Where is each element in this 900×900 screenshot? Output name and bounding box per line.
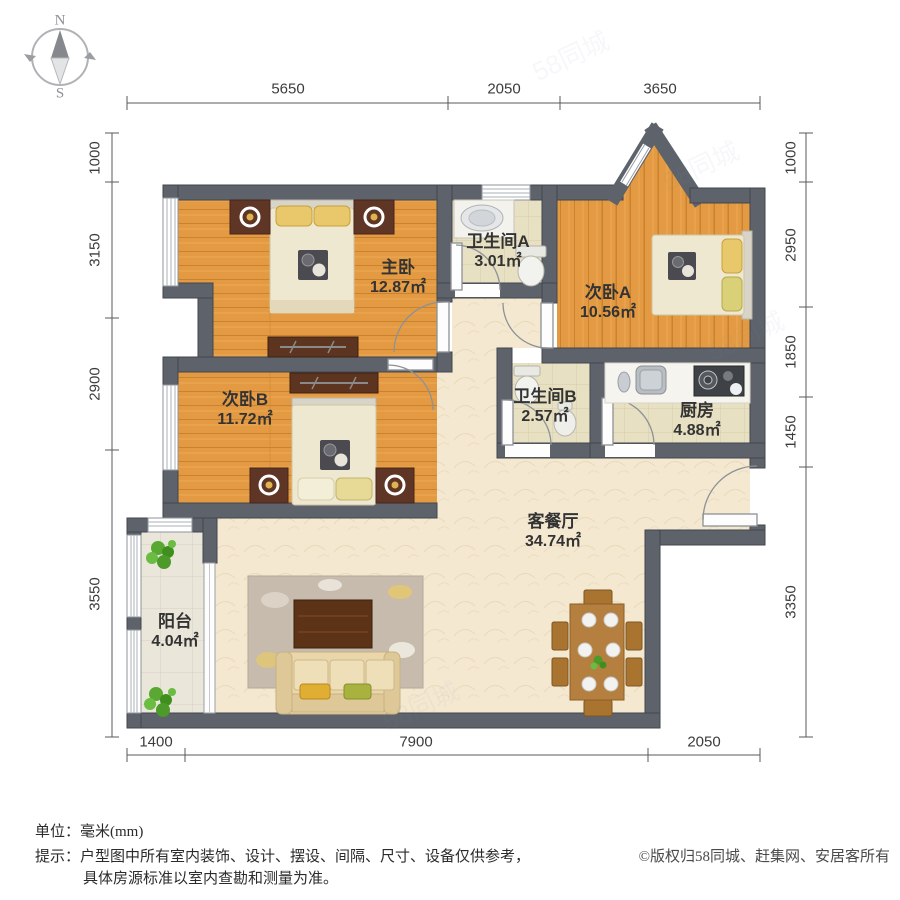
master-window-left: [163, 198, 178, 286]
bedroom-b-wardrobe: [290, 373, 378, 393]
dimension-line-top: [127, 96, 760, 110]
balcony-window-top: [148, 518, 192, 532]
coffee-table: [294, 600, 372, 648]
bedroom-b-bed: [292, 398, 376, 505]
room-name: 主卧: [381, 258, 415, 278]
room-label-living-dining: 客餐厅 34.74㎡: [525, 512, 581, 552]
wall-living-right: [645, 530, 660, 727]
bathroom-a-window-top: [482, 185, 530, 200]
wall-balcony-divider-stub: [203, 518, 217, 563]
room-label-master-bedroom: 主卧 12.87㎡: [370, 258, 426, 298]
kitchen-stove: [694, 366, 744, 396]
bedroom-b-nightstand-left: [250, 468, 288, 503]
dim-top-3: 3650: [643, 81, 676, 98]
dim-right-1: 1000: [783, 141, 800, 174]
room-name: 卫生间A: [466, 232, 529, 252]
dim-bottom-1: 1400: [139, 734, 172, 751]
kitchen-jug: [618, 372, 630, 392]
balcony-living-divider-panel: [204, 563, 215, 713]
room-name: 客餐厅: [527, 512, 578, 532]
compass-north-label: N: [55, 13, 66, 30]
tip-line-2: 具体房源标准以室内查勘和测量为准。: [83, 867, 338, 888]
dimension-line-left: [105, 133, 119, 737]
compass-icon: [24, 29, 96, 85]
room-area: 4.04㎡: [151, 632, 198, 652]
dim-left-4: 3550: [87, 577, 104, 610]
dim-right-5: 3350: [783, 585, 800, 618]
copyright-notice: ©版权归58同城、赶集网、安居客所有: [639, 845, 890, 866]
room-area: 3.01㎡: [474, 252, 521, 272]
room-label-kitchen: 厨房 4.88㎡: [673, 401, 720, 441]
floor-plan-page: N S 58同城 58同城 58同城 58同城 5650 2050 3650 1…: [0, 0, 900, 900]
room-area: 11.72㎡: [217, 410, 272, 430]
room-area: 12.87㎡: [370, 278, 426, 298]
bedroom-a-bed: [652, 231, 752, 319]
balcony-window-left-1: [127, 535, 141, 617]
master-tv-cabinet: [268, 337, 358, 357]
bedroom-b-window-left: [163, 385, 178, 470]
room-name: 次卧B: [222, 390, 268, 410]
dim-bottom-3: 2050: [687, 734, 720, 751]
room-area: 10.56㎡: [580, 303, 636, 323]
room-label-bedroom-b: 次卧B 11.72㎡: [217, 390, 272, 430]
compass-south-label: S: [56, 86, 64, 103]
room-name: 厨房: [680, 401, 714, 421]
balcony-window-left-2: [127, 630, 141, 713]
dim-right-2: 2950: [783, 228, 800, 261]
tip-line-1: 提示：户型图中所有室内装饰、设计、摆设、间隔、尺寸、设备仅供参考，: [35, 845, 530, 866]
dim-bottom-2: 7900: [399, 734, 432, 751]
kitchen-counter: [605, 363, 750, 403]
dim-left-1: 1000: [87, 141, 104, 174]
room-label-balcony: 阳台 4.04㎡: [151, 612, 198, 652]
room-area: 2.57㎡: [521, 407, 568, 427]
dim-left-3: 2900: [87, 367, 104, 400]
dimension-line-bottom: [127, 748, 760, 762]
room-area: 4.88㎡: [673, 421, 720, 441]
master-nightstand-right: [354, 200, 394, 234]
room-label-bathroom-a: 卫生间A 3.01㎡: [466, 232, 529, 272]
dim-right-4: 1450: [783, 415, 800, 448]
room-name: 阳台: [158, 612, 192, 632]
wall-entry-step: [645, 530, 765, 545]
dim-top-2: 2050: [487, 81, 520, 98]
room-label-bathroom-b: 卫生间B 2.57㎡: [513, 387, 576, 427]
dim-right-3: 1850: [783, 335, 800, 368]
dim-top-1: 5650: [271, 81, 304, 98]
master-bed: [268, 200, 356, 313]
room-area: 34.74㎡: [525, 532, 581, 552]
wall-bedroom-a-left: [542, 283, 557, 303]
bedroom-b-nightstand-right: [376, 468, 414, 503]
floor-plan-drawing: [0, 0, 900, 900]
dim-left-2: 3150: [87, 233, 104, 266]
unit-note: 单位：毫米(mm): [35, 820, 143, 841]
wall-master-right-lower: [437, 352, 452, 372]
master-nightstand-left: [230, 200, 270, 234]
room-name: 次卧A: [585, 283, 631, 303]
room-name: 卫生间B: [513, 387, 576, 407]
wall-bathroom-a-right: [542, 185, 557, 298]
wall-notch-right: [198, 298, 213, 360]
dimension-line-right: [799, 133, 813, 737]
room-label-bedroom-a: 次卧A 10.56㎡: [580, 283, 636, 323]
